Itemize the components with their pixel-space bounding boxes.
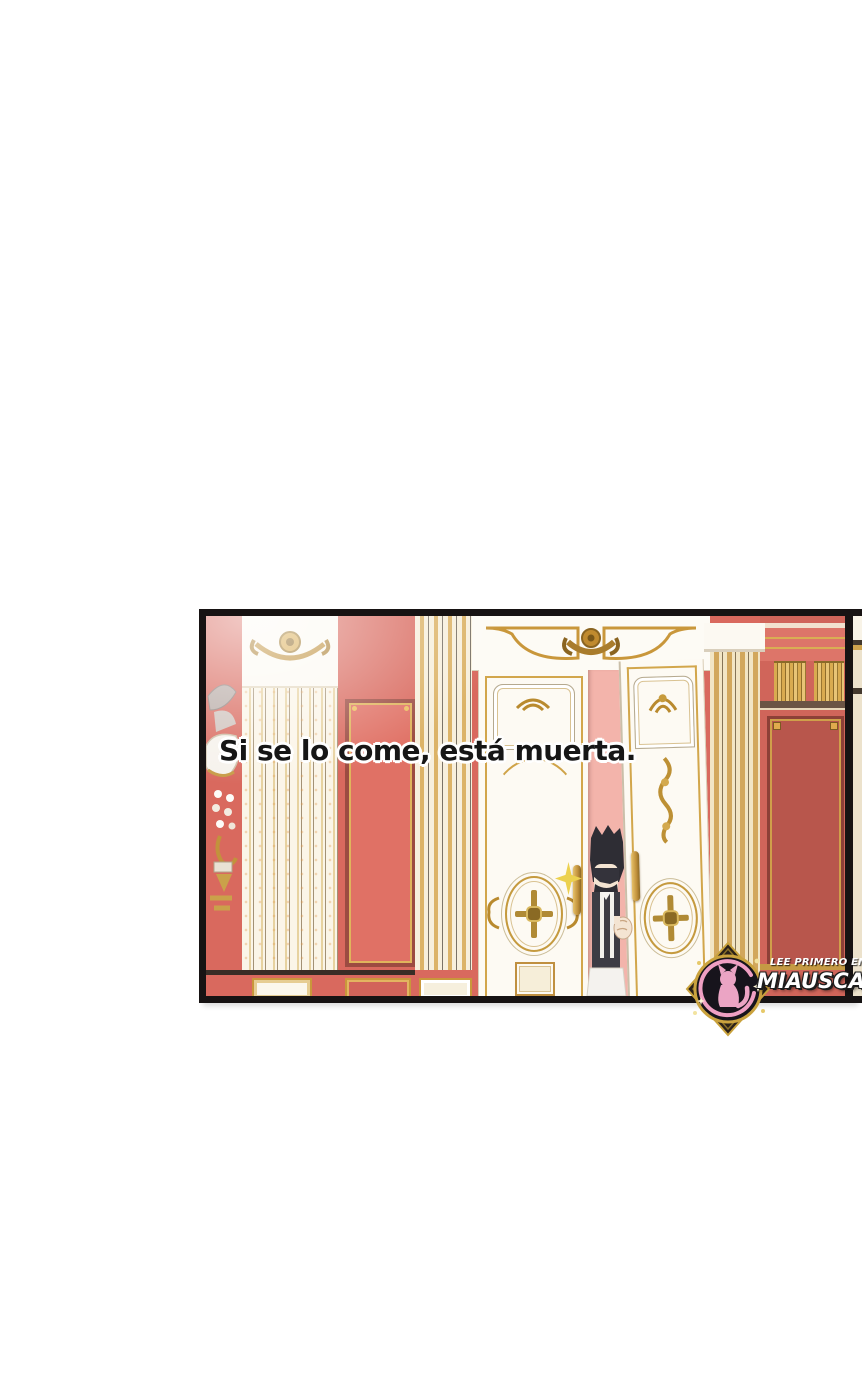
gold-corner-square xyxy=(774,723,780,729)
door-crest-ornament xyxy=(513,690,553,716)
lower-wall-panel xyxy=(419,978,472,996)
red-wall-panel-dark xyxy=(767,716,844,970)
door-filigree xyxy=(651,756,679,845)
door-lower-emblem xyxy=(515,962,555,996)
door-left xyxy=(478,670,591,996)
watermark-site: MIAUSCAN.C xyxy=(757,969,862,993)
bleed-line xyxy=(853,688,862,694)
scroll-bracket-left xyxy=(485,896,503,930)
panel-border xyxy=(199,609,206,1003)
art-bleed-strip xyxy=(853,609,862,1003)
watermark-lead: LEE PRIMERO EN: xyxy=(770,957,862,968)
gold-corner-dot xyxy=(404,706,409,711)
gold-triglyph xyxy=(814,661,844,705)
right-red-wall xyxy=(760,616,845,996)
gold-triglyph xyxy=(774,661,806,705)
door-handle-left xyxy=(573,865,581,915)
column-capital xyxy=(704,623,765,652)
dark-molding xyxy=(760,701,845,710)
door-crown-ornament xyxy=(643,686,682,717)
panel-border xyxy=(199,609,862,616)
lower-wall-panel xyxy=(252,978,312,996)
maid-character xyxy=(583,824,633,996)
caption-text: Si se lo come, está muerta. xyxy=(219,734,636,767)
gold-corner-square xyxy=(831,723,837,729)
medallion-core xyxy=(528,908,540,920)
bleed-line xyxy=(853,645,862,650)
lower-wall-panel xyxy=(345,978,411,996)
panel-artwork xyxy=(206,616,845,996)
wall-upper-band xyxy=(760,628,845,661)
wainscot-line xyxy=(206,970,415,975)
gold-line xyxy=(760,647,845,649)
watermark-text: LEE PRIMERO EN: MIAUSCAN.C xyxy=(757,957,862,993)
striped-column xyxy=(415,616,472,970)
page: { "page": {"background": "#ffffff", "typ… xyxy=(0,0,862,1396)
medallion-core xyxy=(665,912,677,924)
panel-border xyxy=(845,609,853,1003)
door-oval-medallion xyxy=(505,876,563,952)
gold-corner-dot xyxy=(352,706,357,711)
chandelier-sconce xyxy=(206,666,266,916)
gold-line xyxy=(760,637,845,639)
